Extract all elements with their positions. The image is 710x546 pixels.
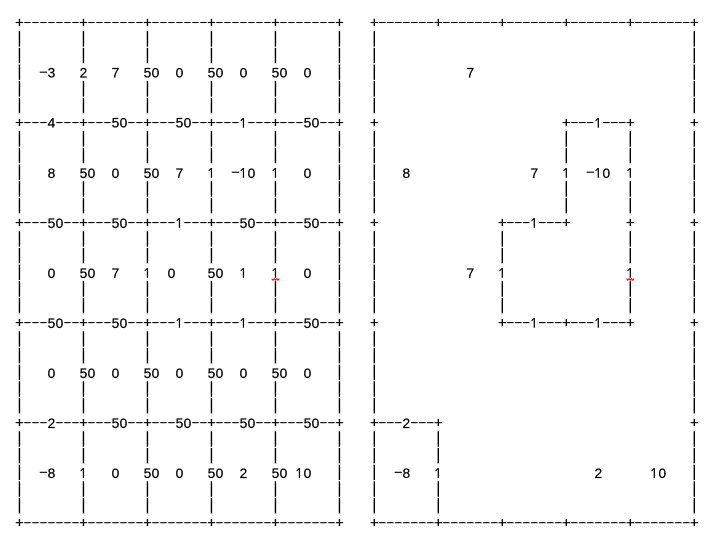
svg-text:0: 0 [120, 116, 128, 131]
svg-text:5: 5 [144, 466, 152, 481]
svg-text:0: 0 [304, 166, 312, 181]
svg-text:0: 0 [240, 66, 248, 81]
svg-text:0: 0 [56, 316, 64, 331]
svg-text:0: 0 [88, 166, 96, 181]
svg-text:0: 0 [112, 166, 120, 181]
svg-text:0: 0 [112, 366, 120, 381]
svg-text:0: 0 [120, 316, 128, 331]
svg-text:5: 5 [48, 316, 56, 331]
svg-text:0: 0 [176, 66, 184, 81]
svg-text:0: 0 [56, 216, 64, 231]
svg-text:0: 0 [248, 216, 256, 231]
svg-text:3: 3 [48, 66, 56, 81]
svg-text:5: 5 [48, 216, 56, 231]
svg-text:0: 0 [312, 116, 320, 131]
svg-text:7: 7 [112, 66, 120, 81]
svg-text:0: 0 [216, 366, 224, 381]
svg-text:5: 5 [112, 316, 120, 331]
svg-text:2: 2 [80, 66, 88, 81]
svg-text:0: 0 [216, 466, 224, 481]
svg-text:0: 0 [168, 266, 176, 281]
svg-text:0: 0 [216, 66, 224, 81]
svg-text:8: 8 [48, 166, 56, 181]
svg-text:5: 5 [304, 316, 312, 331]
svg-text:0: 0 [304, 366, 312, 381]
svg-text:0: 0 [184, 116, 192, 131]
svg-text:0: 0 [88, 266, 96, 281]
svg-text:0: 0 [152, 366, 160, 381]
svg-text:4: 4 [48, 116, 56, 131]
svg-text:5: 5 [208, 66, 216, 81]
svg-text:0: 0 [152, 166, 160, 181]
svg-text:0: 0 [248, 416, 256, 431]
svg-text:5: 5 [240, 216, 248, 231]
svg-text:8: 8 [402, 166, 410, 181]
svg-text:0: 0 [112, 466, 120, 481]
svg-text:0: 0 [48, 266, 56, 281]
svg-text:0: 0 [312, 316, 320, 331]
svg-text:0: 0 [312, 216, 320, 231]
svg-text:5: 5 [240, 416, 248, 431]
svg-text:0: 0 [176, 366, 184, 381]
svg-text:0: 0 [216, 266, 224, 281]
svg-text:5: 5 [208, 366, 216, 381]
svg-text:5: 5 [208, 466, 216, 481]
svg-text:0: 0 [248, 166, 256, 181]
svg-text:5: 5 [112, 416, 120, 431]
svg-text:0: 0 [120, 416, 128, 431]
svg-text:5: 5 [176, 416, 184, 431]
svg-text:5: 5 [176, 116, 184, 131]
svg-text:5: 5 [272, 466, 280, 481]
svg-text:2: 2 [240, 466, 248, 481]
svg-text:5: 5 [144, 66, 152, 81]
svg-text:8: 8 [48, 466, 56, 481]
svg-text:0: 0 [240, 366, 248, 381]
svg-text:7: 7 [176, 166, 184, 181]
svg-text:0: 0 [88, 366, 96, 381]
svg-text:0: 0 [304, 266, 312, 281]
svg-text:7: 7 [530, 166, 538, 181]
svg-text:2: 2 [48, 416, 56, 431]
svg-text:5: 5 [304, 216, 312, 231]
svg-text:0: 0 [176, 466, 184, 481]
svg-text:7: 7 [112, 266, 120, 281]
svg-text:7: 7 [466, 66, 474, 81]
svg-text:5: 5 [80, 366, 88, 381]
svg-text:5: 5 [304, 116, 312, 131]
svg-text:0: 0 [312, 416, 320, 431]
svg-text:0: 0 [48, 366, 56, 381]
svg-text:0: 0 [602, 166, 610, 181]
svg-text:0: 0 [152, 466, 160, 481]
svg-text:0: 0 [280, 66, 288, 81]
svg-text:8: 8 [402, 466, 410, 481]
svg-text:5: 5 [272, 66, 280, 81]
svg-text:0: 0 [280, 466, 288, 481]
svg-text:5: 5 [80, 266, 88, 281]
svg-text:7: 7 [466, 266, 474, 281]
svg-text:0: 0 [152, 66, 160, 81]
svg-text:5: 5 [272, 366, 280, 381]
svg-text:2: 2 [594, 466, 602, 481]
svg-text:0: 0 [658, 466, 666, 481]
svg-text:0: 0 [120, 216, 128, 231]
svg-text:5: 5 [80, 166, 88, 181]
svg-text:0: 0 [184, 416, 192, 431]
svg-text:0: 0 [304, 66, 312, 81]
svg-text:5: 5 [304, 416, 312, 431]
svg-text:5: 5 [208, 266, 216, 281]
svg-text:2: 2 [402, 416, 410, 431]
svg-text:5: 5 [112, 216, 120, 231]
svg-text:0: 0 [280, 366, 288, 381]
svg-text:5: 5 [144, 366, 152, 381]
svg-text:5: 5 [144, 166, 152, 181]
svg-text:5: 5 [112, 116, 120, 131]
svg-text:0: 0 [304, 466, 312, 481]
